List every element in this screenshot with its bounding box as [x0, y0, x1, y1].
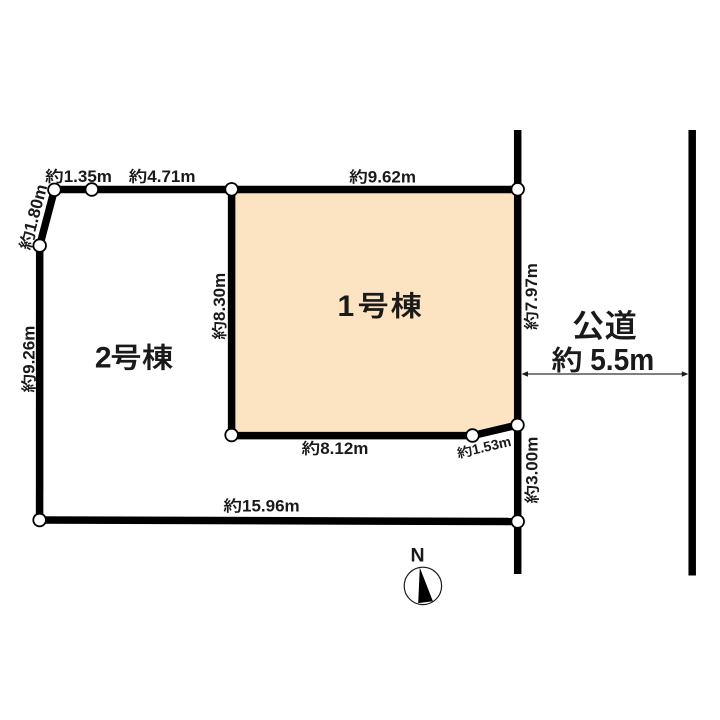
svg-text:7.97m: 7.97m	[522, 263, 541, 311]
svg-text:4.71m: 4.71m	[147, 167, 195, 186]
svg-text:9.26m: 9.26m	[19, 326, 38, 374]
svg-text:N: N	[411, 545, 425, 567]
svg-text:8.30m: 8.30m	[210, 273, 229, 321]
svg-text:5.5m: 5.5m	[590, 342, 654, 377]
svg-text:1: 1	[338, 290, 355, 323]
svg-text:2: 2	[95, 342, 112, 375]
svg-text:9.62m: 9.62m	[368, 168, 416, 187]
svg-text:1.35m: 1.35m	[64, 167, 112, 186]
svg-text:3.00m: 3.00m	[523, 437, 542, 485]
svg-text:15.96m: 15.96m	[242, 497, 300, 516]
svg-text:8.12m: 8.12m	[320, 439, 368, 458]
